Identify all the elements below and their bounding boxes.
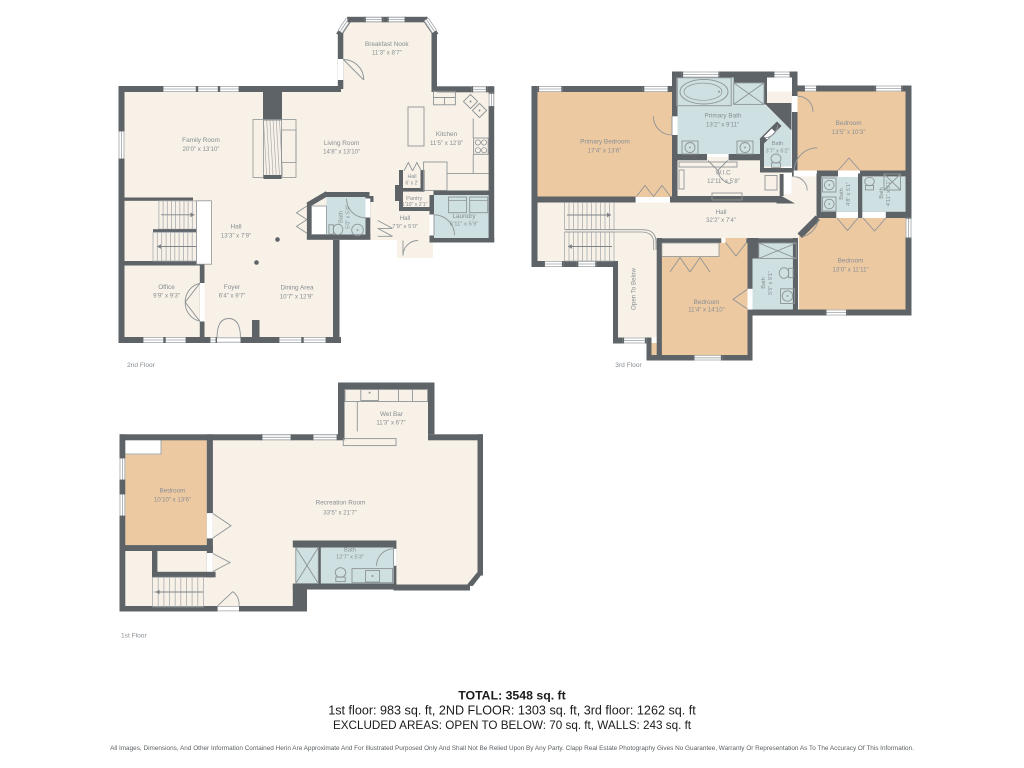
svg-text:13’5” x 10’3”: 13’5” x 10’3” xyxy=(832,129,866,136)
svg-text:Bath: Bath xyxy=(879,187,885,199)
svg-text:10’10” x 13’6”: 10’10” x 13’6” xyxy=(154,497,191,504)
svg-text:TOTAL: 3548 sq. ft: TOTAL: 3548 sq. ft xyxy=(458,688,566,702)
svg-text:5’0” x 5’4”: 5’0” x 5’4” xyxy=(346,205,352,229)
svg-text:Recreation Room: Recreation Room xyxy=(316,500,366,507)
svg-text:Hall: Hall xyxy=(715,209,726,216)
svg-text:Bath: Bath xyxy=(772,141,784,147)
svg-text:13’3” x 7’9”: 13’3” x 7’9” xyxy=(221,233,251,240)
svg-text:Bath: Bath xyxy=(761,277,767,289)
svg-text:Bedroom: Bedroom xyxy=(836,120,862,127)
svg-text:Bedroom: Bedroom xyxy=(838,258,864,265)
svg-text:13’2” x 9’11”: 13’2” x 9’11” xyxy=(706,122,739,129)
svg-text:EXCLUDED AREAS: OPEN TO BELOW:: EXCLUDED AREAS: OPEN TO BELOW: 70 sq. ft… xyxy=(333,719,692,732)
svg-text:17’4” x 13’6”: 17’4” x 13’6” xyxy=(588,148,622,155)
svg-text:3’7” x 6’2”: 3’7” x 6’2” xyxy=(766,149,790,155)
svg-text:14’8” x 13’10”: 14’8” x 13’10” xyxy=(323,149,360,156)
svg-text:11’3” x 6’7”: 11’3” x 6’7” xyxy=(376,421,405,427)
svg-text:6’ x 2’: 6’ x 2’ xyxy=(406,181,419,187)
svg-text:All Images, Dimensions, And Ot: All Images, Dimensions, And Other Inform… xyxy=(110,745,914,752)
svg-text:Hall: Hall xyxy=(400,215,411,222)
svg-text:3rd Floor: 3rd Floor xyxy=(615,362,642,369)
svg-text:13’0” x 11’11”: 13’0” x 11’11” xyxy=(832,267,868,274)
svg-text:1st Floor: 1st Floor xyxy=(121,633,147,640)
svg-text:12’11” x 5’8”: 12’11” x 5’8” xyxy=(707,179,740,185)
svg-text:4’8” x 5’1”: 4’8” x 5’1” xyxy=(846,182,852,206)
svg-text:1’10” x 2’1”: 1’10” x 2’1” xyxy=(402,202,428,208)
svg-text:Bedroom: Bedroom xyxy=(694,299,720,306)
svg-text:2nd Floor: 2nd Floor xyxy=(127,362,156,369)
svg-text:Bath: Bath xyxy=(839,188,845,200)
svg-text:Kitchen: Kitchen xyxy=(436,131,458,138)
svg-text:Hall: Hall xyxy=(408,174,417,180)
svg-text:11’3” x 8’7”: 11’3” x 8’7” xyxy=(372,50,402,57)
svg-text:5’5” x 9’1”: 5’5” x 9’1” xyxy=(768,271,774,295)
svg-text:1st floor: 983 sq. ft, 2ND FLO: 1st floor: 983 sq. ft, 2ND FLOOR: 1303 s… xyxy=(328,704,696,718)
svg-text:12’7” x 5’3”: 12’7” x 5’3” xyxy=(336,555,364,561)
svg-text:Hall: Hall xyxy=(230,224,241,231)
svg-text:Primary Bedroom: Primary Bedroom xyxy=(580,139,630,146)
svg-text:11’4” x 14’10”: 11’4” x 14’10” xyxy=(688,307,724,314)
svg-text:Living Room: Living Room xyxy=(324,140,360,147)
svg-text:20’0” x 13’10”: 20’0” x 13’10” xyxy=(183,146,220,153)
svg-text:6’4” x 9’7”: 6’4” x 9’7” xyxy=(219,293,246,300)
svg-text:Office: Office xyxy=(158,284,175,291)
svg-text:Bath: Bath xyxy=(344,548,356,554)
svg-text:6’11” x 5’9”: 6’11” x 5’9” xyxy=(450,222,479,228)
svg-text:Bedroom: Bedroom xyxy=(160,488,186,495)
svg-text:32’2” x 7’4”: 32’2” x 7’4” xyxy=(706,218,736,224)
svg-text:33’5” x 21’7”: 33’5” x 21’7” xyxy=(323,510,357,517)
svg-text:10’7” x 12’9”: 10’7” x 12’9” xyxy=(280,294,314,301)
svg-text:W.I.C: W.I.C xyxy=(715,170,731,177)
svg-text:Dining Area: Dining Area xyxy=(280,285,313,292)
svg-text:11’5” x 12’8”: 11’5” x 12’8” xyxy=(430,140,463,147)
svg-text:Bath: Bath xyxy=(339,211,345,223)
svg-text:9’9” x 9’3”: 9’9” x 9’3” xyxy=(153,293,180,300)
svg-text:7’9” x 5’0”: 7’9” x 5’0” xyxy=(392,224,418,230)
svg-text:Open To Below: Open To Below xyxy=(631,268,638,310)
svg-text:Wet Bar: Wet Bar xyxy=(380,411,404,418)
svg-text:Breakfast Nook: Breakfast Nook xyxy=(365,41,409,48)
svg-text:Foyer: Foyer xyxy=(224,284,241,291)
svg-text:4’11” x 5’1”: 4’11” x 5’1” xyxy=(886,180,892,206)
svg-text:Laundry: Laundry xyxy=(452,213,476,220)
svg-text:Primary Bath: Primary Bath xyxy=(705,113,742,120)
svg-text:Family Room: Family Room xyxy=(182,137,220,144)
